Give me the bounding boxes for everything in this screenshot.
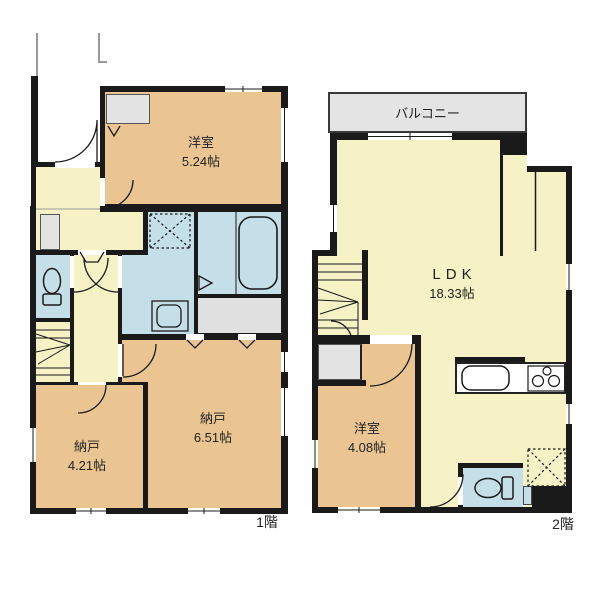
entrance-hall [100,212,143,250]
door-opening [55,160,95,168]
utility-space [198,298,281,333]
kitchen-counter [455,362,566,394]
floor2-label: 2階 [552,514,574,534]
wall [532,486,572,513]
window [281,108,288,162]
door-opening [458,477,463,505]
door-opening [370,335,412,344]
wall [415,344,421,507]
window [281,352,288,372]
wall [362,250,368,320]
room-label-western-1f: 洋室 5.24帖 [182,133,220,171]
door-opening [118,256,122,288]
room-label-western-2f: 洋室 4.08帖 [348,419,386,457]
balcony: バルコニー [328,92,527,133]
window [368,133,452,140]
closet-2f [318,344,362,380]
room-label-storage-large: 納戸 6.51帖 [194,409,232,447]
entrance-porch [38,56,100,162]
ldk [503,155,527,256]
corridor [74,255,118,382]
window [338,507,380,513]
wall [122,250,148,255]
toilet-room-1f [36,255,70,318]
door-opening [78,250,106,255]
closet-1f [106,94,150,124]
window [76,508,106,514]
ldk [527,172,566,256]
toilet-shelf [523,486,532,505]
toilet-room-2f [463,468,523,507]
window [312,440,318,468]
door-opening [78,382,106,385]
window [188,508,220,514]
room-storage-large [122,340,281,382]
window [225,86,262,92]
vent-opening [238,334,256,340]
washroom [148,212,194,252]
room-label-ldk: LDK 18.33帖 [427,265,476,303]
vent-opening [186,334,204,340]
washroom [122,250,194,334]
shoe-cabinet [40,214,60,250]
bathroom [198,212,281,294]
window [566,264,572,290]
door-opening [70,256,74,288]
floorplan: バルコニー [0,0,600,599]
staircase-1f [36,322,70,382]
floor1-label: 1階 [256,512,278,532]
door-opening [100,178,105,206]
window [330,205,337,232]
balcony-label: バルコニー [395,103,460,122]
window [30,428,36,462]
ldk [337,140,500,256]
window [566,404,572,424]
room-label-storage-small: 納戸 4.21帖 [68,437,106,475]
door-opening [118,344,122,377]
window [281,388,288,436]
wall [312,380,366,386]
